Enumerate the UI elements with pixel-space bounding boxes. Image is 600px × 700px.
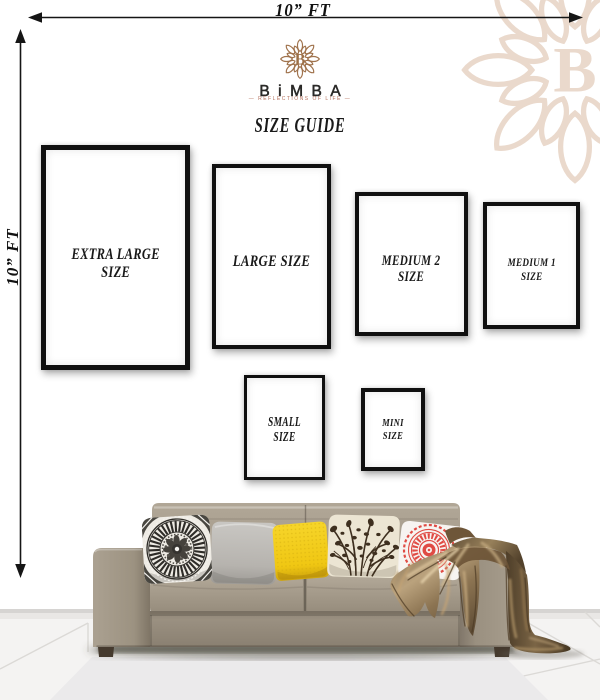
svg-text:B: B xyxy=(553,35,596,107)
svg-text:B: B xyxy=(295,51,306,68)
